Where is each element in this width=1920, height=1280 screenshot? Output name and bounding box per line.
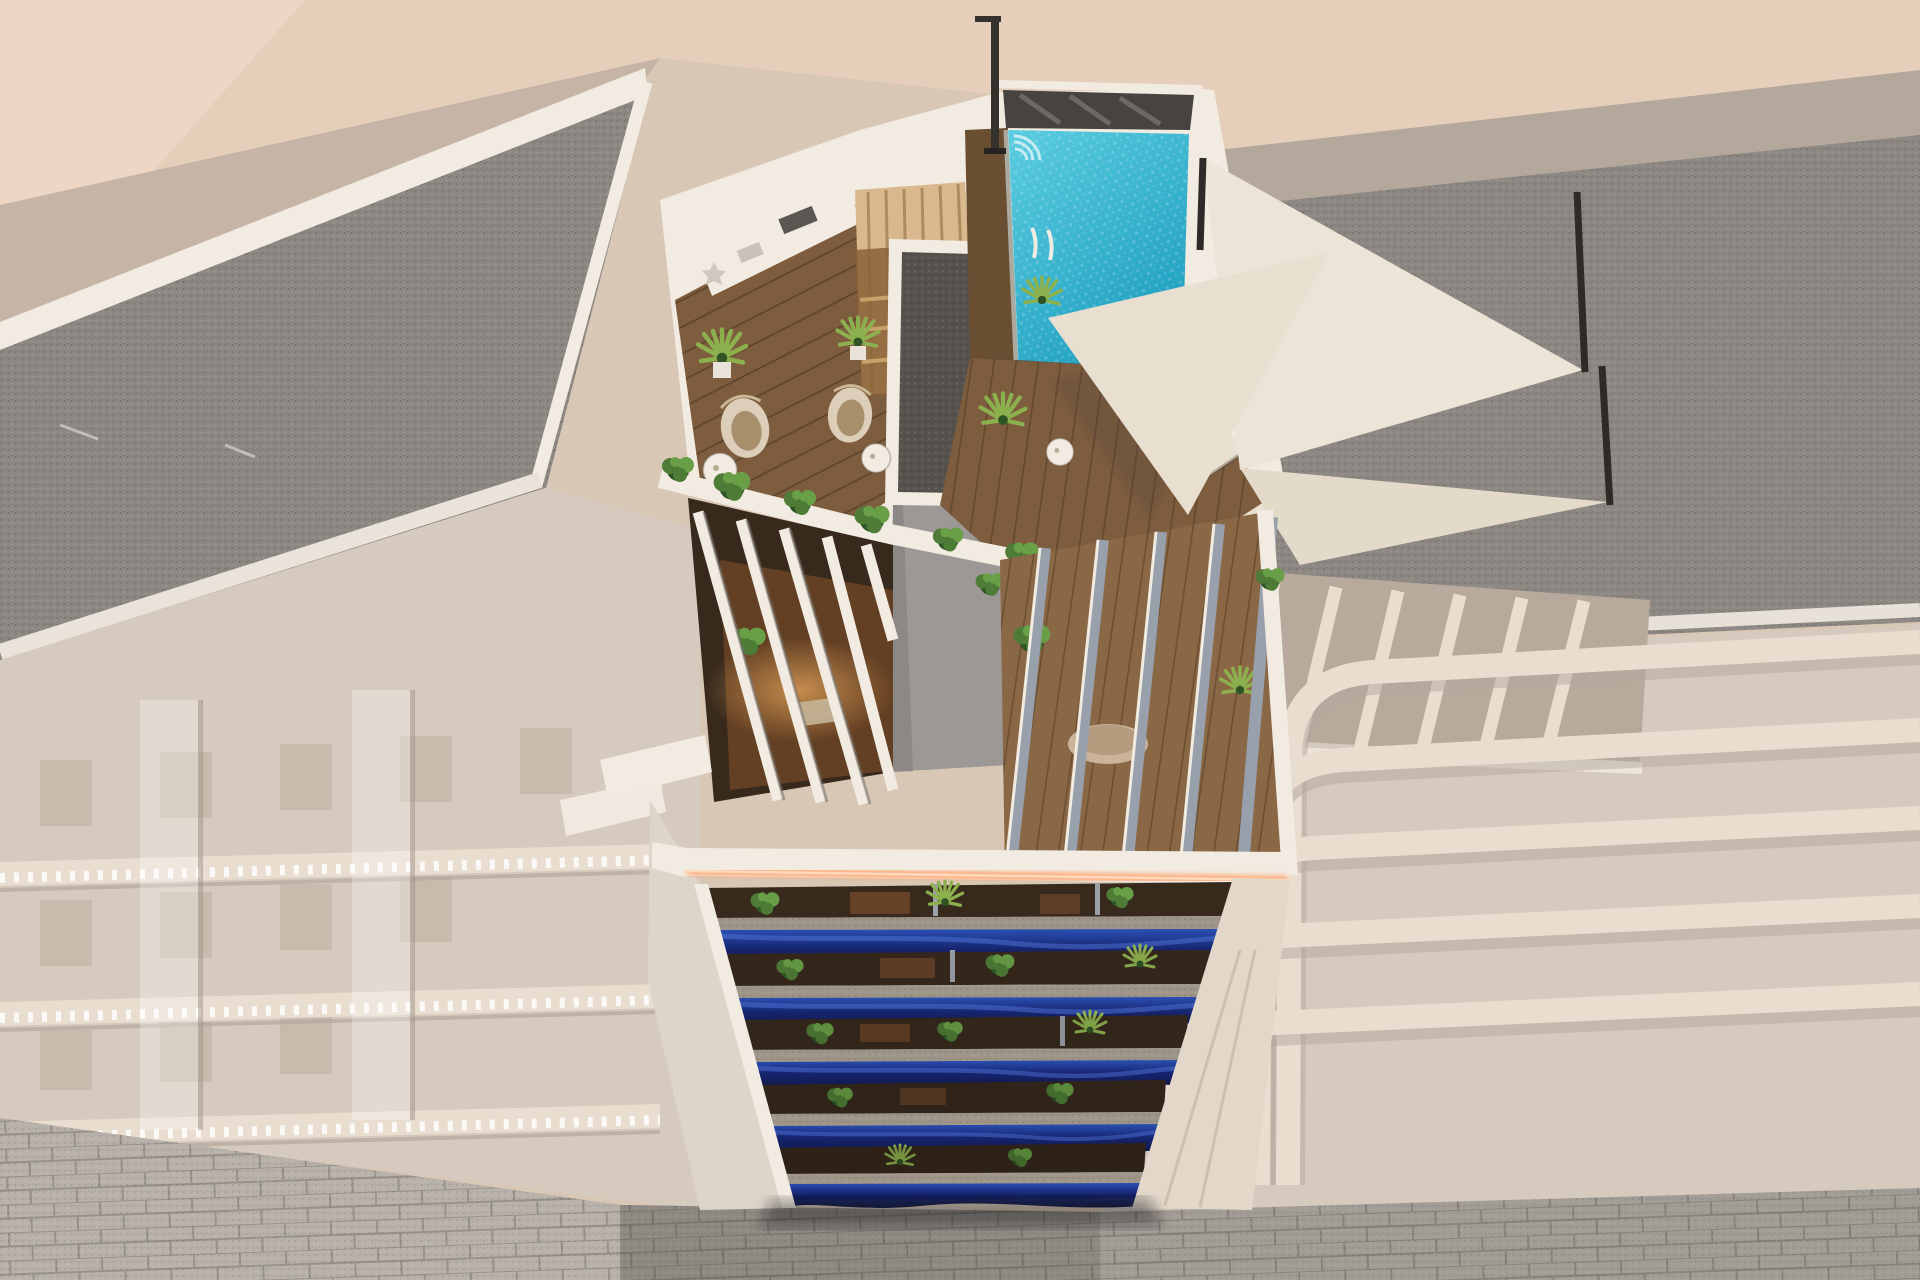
glass-roof-band <box>1003 90 1194 130</box>
palm-pot <box>713 362 731 378</box>
pool-rear-wall <box>995 84 1202 89</box>
aerial-render <box>0 0 1920 1280</box>
balcony-floor <box>771 1143 1146 1208</box>
balcony-floor <box>737 1011 1188 1090</box>
building-base-shadow <box>760 1198 1162 1228</box>
left-neighbor-building <box>0 58 700 1210</box>
bistro-table <box>862 444 891 473</box>
palm-pot <box>850 346 866 360</box>
balcony-stack <box>694 878 1290 1210</box>
architectural-render-image <box>0 0 1920 1280</box>
